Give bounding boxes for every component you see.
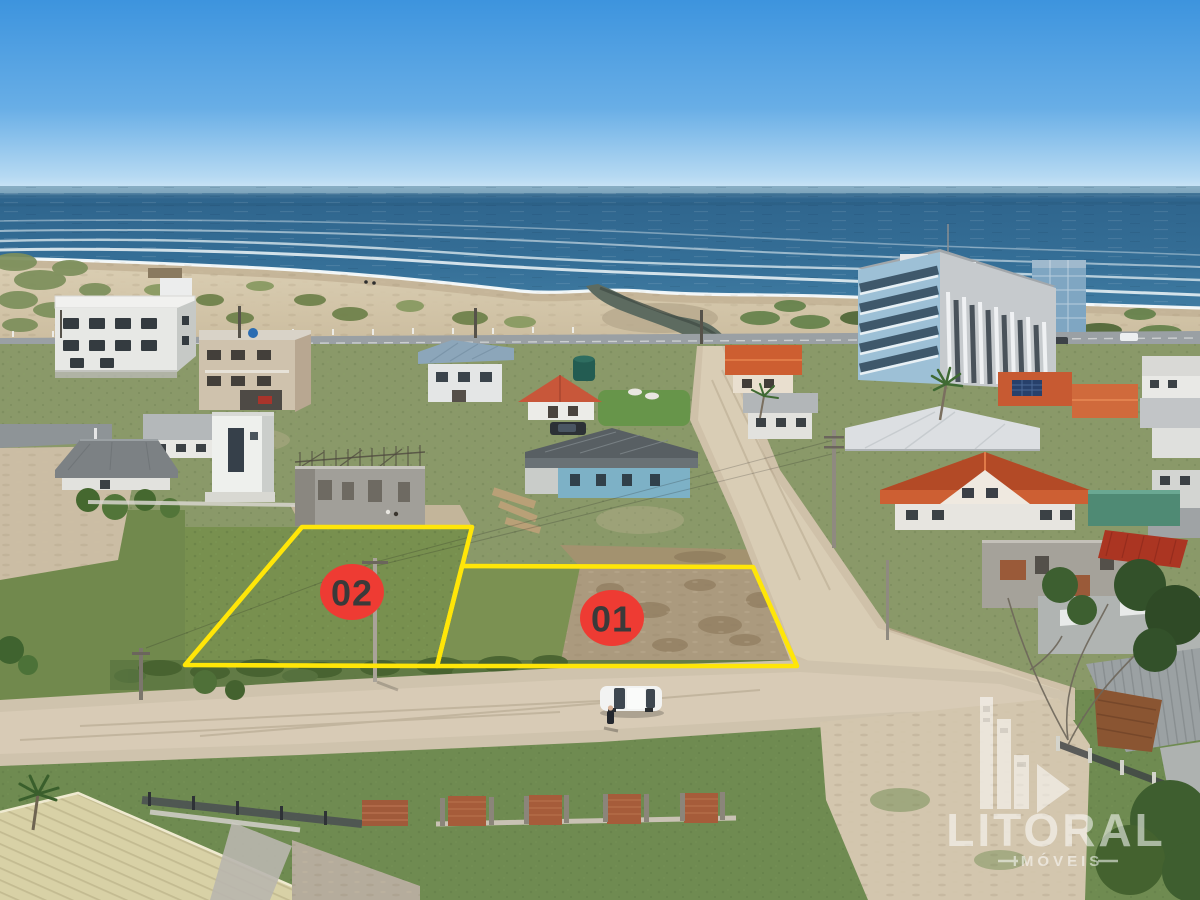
modern-white-house: [205, 412, 275, 502]
lot-label-01: 01: [591, 599, 633, 640]
beach-deck: [148, 268, 182, 278]
terrace-house: [743, 393, 818, 439]
garage-car: [258, 396, 272, 404]
worker: [394, 512, 398, 516]
beach-walker: [364, 280, 368, 284]
parked-car: [1120, 333, 1138, 341]
blue-metal-roof-house: [418, 340, 514, 402]
beach-walker: [372, 281, 376, 285]
worker: [386, 510, 390, 514]
utility-pole: [886, 560, 889, 640]
aerial-photo: 02 01 LITORAL IMÓVEIS: [0, 0, 1200, 900]
watermark-brand: LITORAL: [946, 804, 1165, 856]
lot-badge-01: 01: [580, 590, 644, 646]
sky: [0, 0, 1200, 196]
lot-badge-02: 02: [320, 564, 384, 620]
watermark-subtitle: IMÓVEIS: [1013, 852, 1104, 870]
green-wall-yard: [1088, 490, 1180, 526]
aerial-photo-stage: 02 01 LITORAL IMÓVEIS: [0, 0, 1200, 900]
water-tank: [248, 328, 258, 338]
lot-label-02: 02: [331, 573, 373, 614]
orange-roof-house: [725, 345, 802, 393]
utility-pole: [139, 648, 143, 700]
tan-building: [199, 328, 311, 412]
